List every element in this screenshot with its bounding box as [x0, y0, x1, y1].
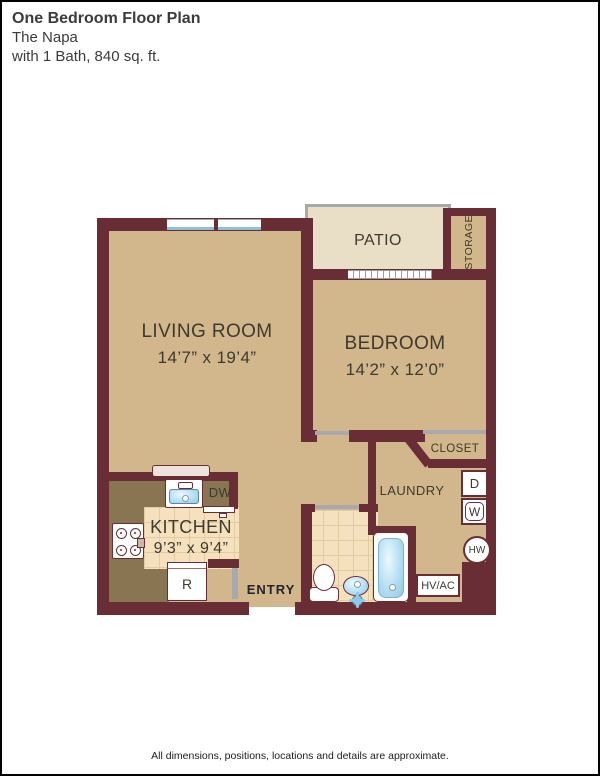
patio-area: PATIO: [305, 204, 451, 274]
dishwasher-shelf: [203, 506, 235, 513]
wall-bottom-left: [97, 602, 249, 615]
water-heater-circle: HW: [463, 536, 491, 564]
page-title: One Bedroom Floor Plan: [12, 9, 200, 28]
bathroom-sink-drain: [354, 581, 361, 588]
wall-living-bedroom-divider: [301, 218, 313, 441]
title-block: One Bedroom Floor Plan The Napa with 1 B…: [12, 9, 200, 66]
kitchen-sink: [165, 479, 203, 508]
kitchen-label: KITCHEN 9’3” x 9’4”: [141, 516, 241, 559]
sink-drain: [182, 495, 189, 502]
storage-label: STORAGE: [463, 215, 475, 270]
patio-sliding-door: [348, 270, 432, 279]
storage-floor: STORAGE: [451, 216, 487, 269]
bedroom-door-opening: [315, 431, 351, 435]
refrigerator-label: R: [182, 576, 192, 592]
kitchen-name: KITCHEN: [141, 516, 241, 539]
bathtub-drain: [389, 584, 396, 591]
refrigerator-handle: [168, 568, 206, 569]
wall-closet-bottom: [428, 459, 496, 468]
bathroom-door-opening: [315, 505, 359, 509]
kitchen-dims: 9’3” x 9’4”: [141, 539, 241, 559]
stove-burner: [116, 545, 127, 556]
refrigerator-box: R: [167, 562, 207, 601]
pass-through-counter: [152, 465, 210, 477]
water-heater-label: HW: [469, 545, 486, 556]
stove: [112, 523, 144, 559]
closet-label: CLOSET: [429, 442, 481, 456]
toilet-bowl: [313, 564, 335, 591]
floor-plan-page: One Bedroom Floor Plan The Napa with 1 B…: [0, 0, 600, 776]
living-room-dims: 14’7” x 19’4”: [132, 347, 282, 368]
wall-left: [97, 218, 109, 615]
bedroom-label: BEDROOM 14’2” x 12’0”: [320, 332, 470, 380]
entry-door-jamb: [232, 568, 238, 599]
living-room-name: LIVING ROOM: [132, 320, 282, 344]
laundry-label: LAUNDRY: [376, 483, 448, 499]
stove-burner: [116, 528, 127, 539]
bathtub: [373, 532, 409, 602]
kitchen-counter-bottom: [109, 565, 169, 602]
living-room-window-2: [218, 219, 261, 230]
plan-name: The Napa: [12, 28, 200, 47]
closet-opening: [423, 430, 486, 434]
sink-basin: [169, 489, 199, 504]
hvac-box: HV/AC: [416, 574, 460, 597]
washer-inner-border: W: [465, 502, 484, 521]
bedroom-name: BEDROOM: [320, 332, 470, 356]
disclaimer-text: All dimensions, positions, locations and…: [2, 750, 598, 762]
wall-corner-block: [462, 562, 496, 615]
plan-details: with 1 Bath, 840 sq. ft.: [12, 47, 200, 66]
wall-kitchen-stub: [208, 559, 239, 568]
living-room-window-1: [167, 219, 214, 230]
bedroom-dims: 14’2” x 12’0”: [320, 359, 470, 380]
dryer-box: D: [461, 470, 488, 497]
dishwasher-label: DW: [205, 485, 235, 501]
wall-hall-laundry: [368, 436, 376, 532]
washer-box: W: [461, 498, 488, 525]
dryer-label: D: [470, 476, 479, 491]
washer-label: W: [469, 505, 480, 519]
bathroom-sink-faucet: [352, 595, 363, 606]
bathtub-basin: [378, 538, 404, 598]
living-room-label: LIVING ROOM 14’7” x 19’4”: [132, 320, 282, 368]
sink-faucet-tab: [178, 482, 193, 489]
entry-label: ENTRY: [244, 582, 298, 598]
patio-label: PATIO: [354, 231, 402, 251]
hvac-label: HV/AC: [421, 580, 455, 592]
wall-bathroom-top-b: [359, 504, 378, 512]
